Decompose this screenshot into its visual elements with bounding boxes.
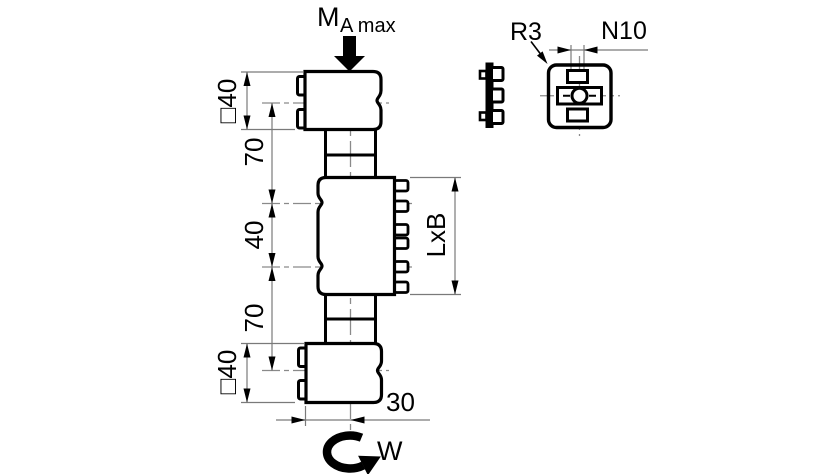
force-arrow-icon (334, 36, 365, 72)
top-block (305, 72, 381, 130)
technical-drawing-canvas: M A max □40 70 40 70 □40 LxB 30 W R3 N10 (0, 0, 827, 474)
upper-shaft (326, 130, 376, 178)
dim-label-70-upper: 70 (241, 138, 267, 167)
detail-center-bore (572, 88, 587, 103)
moment-symbol-label: M (317, 4, 340, 31)
detail-top-slot (568, 71, 588, 83)
profile-tab (492, 111, 504, 124)
rotation-arrow-icon (327, 435, 381, 474)
front-detail-view (540, 56, 620, 136)
dim-label-sq40-top: □40 (214, 79, 240, 124)
detail-bottom-slot (568, 109, 588, 121)
clamp-block (318, 178, 395, 295)
radius-label: R3 (510, 20, 542, 45)
groove-label: N10 (601, 19, 647, 44)
dim-label-30: 30 (386, 389, 415, 415)
clamp-tabs (395, 181, 409, 293)
rotation-label: W (377, 438, 402, 465)
main-view (298, 72, 409, 403)
side-profile-view (480, 63, 503, 128)
dim-label-lxb: LxB (423, 213, 449, 258)
dim-label-sq40-bottom: □40 (214, 350, 240, 395)
profile-tab (492, 68, 504, 81)
dim-label-70-lower: 70 (241, 304, 267, 333)
profile-tab (492, 89, 504, 102)
moment-subscript-label: A max (340, 16, 396, 36)
dim-label-40-center: 40 (241, 221, 267, 250)
bottom-block (306, 344, 382, 403)
